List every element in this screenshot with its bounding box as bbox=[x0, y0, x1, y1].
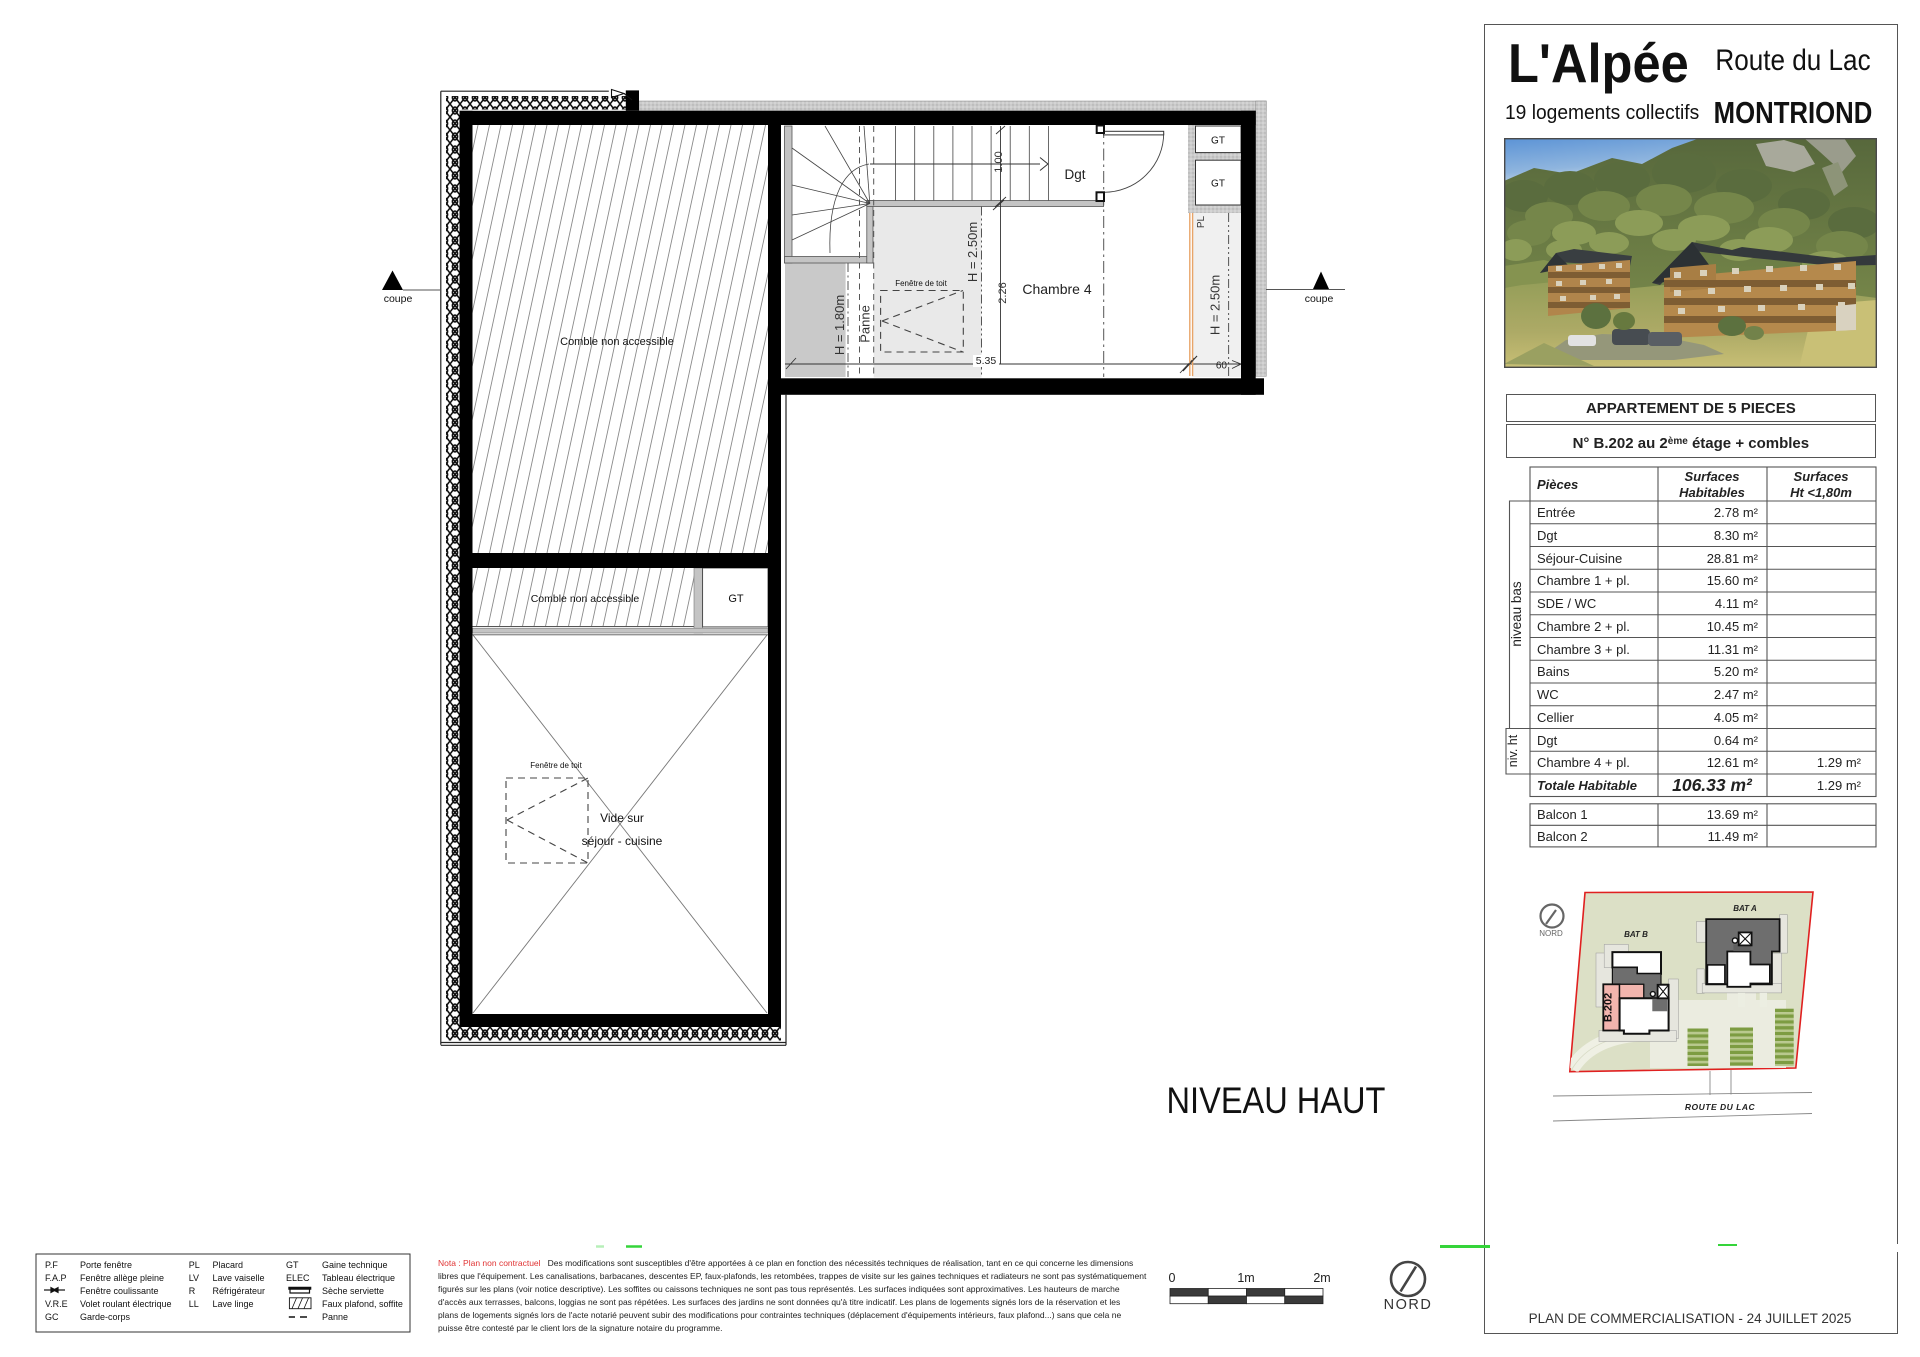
svg-text:Balcon 1: Balcon 1 bbox=[1537, 807, 1588, 822]
svg-text:coupe: coupe bbox=[1305, 293, 1334, 305]
svg-text:Chambre 4: Chambre 4 bbox=[1022, 281, 1091, 297]
svg-text:10.45 m²: 10.45 m² bbox=[1707, 619, 1759, 634]
svg-text:Fenêtre de toit: Fenêtre de toit bbox=[895, 279, 947, 288]
svg-text:ROUTE DU LAC: ROUTE DU LAC bbox=[1685, 1102, 1756, 1112]
svg-text:Vide sur: Vide sur bbox=[600, 811, 644, 825]
svg-text:Chambre 3 + pl.: Chambre 3 + pl. bbox=[1537, 642, 1630, 657]
svg-text:4.11 m²: 4.11 m² bbox=[1715, 596, 1759, 611]
svg-text:Bains: Bains bbox=[1537, 664, 1570, 679]
svg-text:H = 2.50m: H = 2.50m bbox=[1208, 275, 1223, 335]
svg-text:Habitables: Habitables bbox=[1679, 485, 1745, 500]
svg-text:5.35: 5.35 bbox=[976, 355, 997, 367]
svg-text:106.33 m²: 106.33 m² bbox=[1672, 775, 1753, 795]
svg-text:Chambre 4 + pl.: Chambre 4 + pl. bbox=[1537, 755, 1630, 770]
svg-text:Fenêtre de toit: Fenêtre de toit bbox=[530, 761, 582, 770]
svg-text:13.69 m²: 13.69 m² bbox=[1707, 807, 1759, 822]
svg-text:niveau bas: niveau bas bbox=[1509, 581, 1524, 647]
svg-text:H = 2.50m: H = 2.50m bbox=[965, 222, 980, 282]
svg-text:1.29 m²: 1.29 m² bbox=[1817, 778, 1862, 793]
svg-text:Dgt: Dgt bbox=[1537, 528, 1558, 543]
svg-text:8.30 m²: 8.30 m² bbox=[1714, 528, 1759, 543]
svg-text:0.64 m²: 0.64 m² bbox=[1714, 733, 1759, 748]
svg-text:4.05 m²: 4.05 m² bbox=[1714, 710, 1759, 725]
svg-text:PL: PL bbox=[1196, 215, 1207, 228]
svg-text:Surfaces: Surfaces bbox=[1794, 469, 1849, 484]
svg-text:2.47 m²: 2.47 m² bbox=[1714, 687, 1759, 702]
svg-text:5.20 m²: 5.20 m² bbox=[1714, 664, 1759, 679]
svg-text:Comble non accessible: Comble non accessible bbox=[531, 593, 640, 605]
svg-text:BAT B: BAT B bbox=[1624, 930, 1648, 939]
svg-text:B.202: B.202 bbox=[1603, 993, 1615, 1022]
svg-text:niv. ht: niv. ht bbox=[1506, 734, 1520, 767]
svg-text:Panne: Panne bbox=[858, 305, 873, 343]
svg-text:11.31 m²: 11.31 m² bbox=[1708, 642, 1759, 657]
svg-text:Chambre 2 + pl.: Chambre 2 + pl. bbox=[1537, 619, 1630, 634]
svg-text:Dgt: Dgt bbox=[1064, 167, 1085, 182]
svg-text:Balcon 2: Balcon 2 bbox=[1537, 829, 1588, 844]
svg-text:NORD: NORD bbox=[1539, 929, 1563, 938]
svg-text:WC: WC bbox=[1537, 687, 1559, 702]
svg-text:séjour - cuisine: séjour - cuisine bbox=[582, 834, 663, 848]
svg-text:1.29 m²: 1.29 m² bbox=[1817, 755, 1862, 770]
svg-text:11.49 m²: 11.49 m² bbox=[1708, 829, 1759, 844]
svg-text:Pièces: Pièces bbox=[1537, 477, 1578, 492]
svg-text:NORD: NORD bbox=[1384, 1297, 1433, 1313]
svg-text:1m: 1m bbox=[1237, 1271, 1254, 1285]
svg-text:Ht <1,80m: Ht <1,80m bbox=[1790, 485, 1852, 500]
svg-text:Chambre 1 + pl.: Chambre 1 + pl. bbox=[1537, 573, 1630, 588]
svg-text:15.60 m²: 15.60 m² bbox=[1707, 573, 1759, 588]
svg-text:coupe: coupe bbox=[384, 293, 413, 305]
svg-text:Surfaces: Surfaces bbox=[1685, 469, 1740, 484]
svg-text:Cellier: Cellier bbox=[1537, 710, 1575, 725]
svg-text:12.61 m²: 12.61 m² bbox=[1707, 755, 1759, 770]
svg-text:Séjour-Cuisine: Séjour-Cuisine bbox=[1537, 551, 1622, 566]
svg-text:GT: GT bbox=[1211, 179, 1225, 190]
svg-text:H = 1.80m: H = 1.80m bbox=[832, 295, 847, 355]
svg-text:GT: GT bbox=[1211, 136, 1225, 147]
svg-text:60: 60 bbox=[1216, 361, 1228, 372]
svg-text:BAT A: BAT A bbox=[1733, 904, 1757, 913]
svg-text:GT: GT bbox=[728, 593, 744, 605]
svg-text:Dgt: Dgt bbox=[1537, 733, 1558, 748]
svg-text:2.78 m²: 2.78 m² bbox=[1714, 505, 1759, 520]
svg-text:Entrée: Entrée bbox=[1537, 505, 1575, 520]
svg-text:1.00: 1.00 bbox=[993, 151, 1005, 172]
svg-text:0: 0 bbox=[1169, 1271, 1176, 1285]
svg-text:Comble non accessible: Comble non accessible bbox=[560, 336, 674, 348]
svg-text:2m: 2m bbox=[1313, 1271, 1330, 1285]
svg-text:2.26: 2.26 bbox=[997, 282, 1009, 303]
svg-text:Totale Habitable: Totale Habitable bbox=[1537, 778, 1637, 793]
svg-text:SDE / WC: SDE / WC bbox=[1537, 596, 1596, 611]
svg-text:28.81 m²: 28.81 m² bbox=[1707, 551, 1759, 566]
